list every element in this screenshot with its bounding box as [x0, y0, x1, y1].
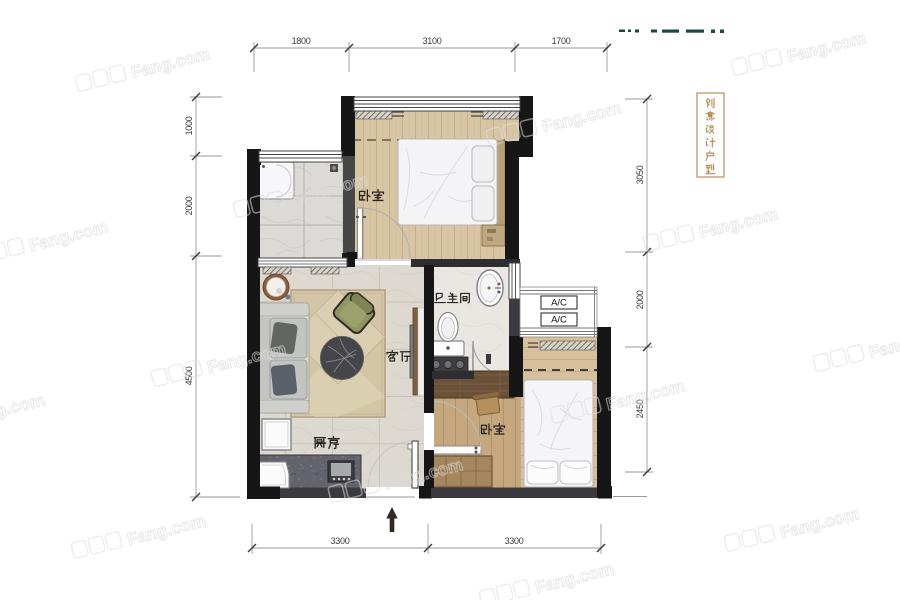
svg-text:3050: 3050 — [635, 165, 645, 184]
svg-text:2000: 2000 — [635, 290, 645, 309]
svg-text:A/C: A/C — [551, 298, 567, 309]
svg-text:1800: 1800 — [292, 36, 311, 46]
svg-text:A/C: A/C — [551, 315, 567, 326]
svg-text:1000: 1000 — [184, 116, 194, 135]
svg-text:3300: 3300 — [505, 536, 524, 546]
svg-text:3300: 3300 — [331, 536, 350, 546]
svg-text:1700: 1700 — [552, 36, 571, 46]
svg-text:2000: 2000 — [184, 196, 194, 215]
svg-text:3100: 3100 — [423, 36, 442, 46]
